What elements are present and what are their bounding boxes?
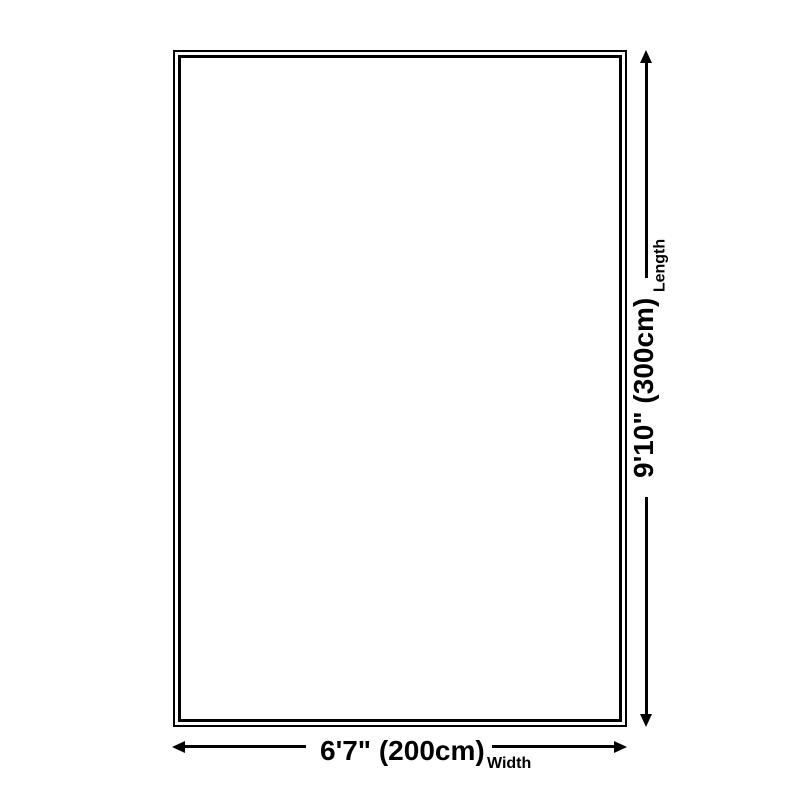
- rug-outline: [173, 50, 627, 727]
- width-label: Width: [487, 755, 531, 772]
- width-value: 6'7" (200cm): [320, 737, 480, 765]
- dimension-diagram: Length 9'10" (300cm) 6'7" (200cm) Width: [0, 0, 800, 800]
- width-arrow-line-left: [184, 745, 306, 748]
- length-value: 9'10" (300cm): [630, 298, 658, 478]
- rug-outline-inner: [178, 55, 622, 722]
- arrow-down-icon: [640, 714, 652, 727]
- length-label: Length: [652, 236, 669, 296]
- length-arrow-line-top: [645, 62, 648, 278]
- length-arrow-line-bottom: [645, 497, 648, 715]
- width-arrow-line-right: [492, 745, 615, 748]
- arrow-right-icon: [614, 741, 627, 753]
